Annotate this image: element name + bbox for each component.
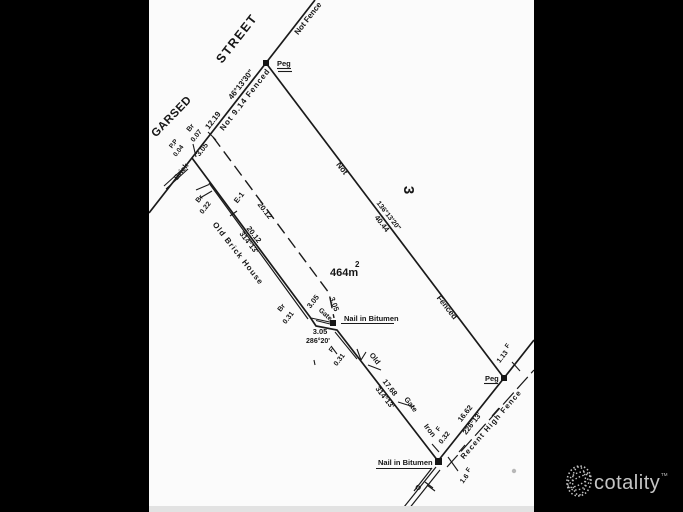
svg-text:F: F — [465, 466, 473, 473]
svg-text:Br: Br — [277, 303, 287, 314]
svg-text:Peg: Peg — [485, 374, 499, 383]
svg-text:cotality: cotality — [594, 472, 660, 494]
svg-text:Not Fence: Not Fence — [293, 0, 324, 36]
svg-text:1.13: 1.13 — [496, 349, 510, 364]
svg-text:2: 2 — [355, 260, 360, 269]
svg-text:3: 3 — [400, 186, 417, 194]
svg-text:STREET: STREET — [213, 11, 260, 66]
svg-text:Nail in Bitumen: Nail in Bitumen — [344, 314, 399, 323]
svg-text:F: F — [504, 342, 512, 349]
svg-text:3.05: 3.05 — [305, 293, 321, 310]
svg-text:286°20': 286°20' — [306, 337, 330, 345]
svg-text:1.6: 1.6 — [459, 473, 471, 485]
svg-text:3.05: 3.05 — [328, 296, 341, 313]
svg-text:0.31: 0.31 — [282, 310, 296, 325]
svg-text:TM: TM — [661, 472, 668, 477]
svg-text:Old: Old — [368, 351, 383, 367]
svg-text:Peg: Peg — [277, 59, 291, 68]
svg-text:3.05: 3.05 — [194, 141, 210, 158]
svg-text:Br: Br — [195, 194, 205, 205]
svg-text:Fenced: Fenced — [435, 294, 459, 322]
svg-text:Iron: Iron — [422, 422, 438, 439]
svg-text:0.31: 0.31 — [333, 352, 347, 367]
svg-text:Not: Not — [334, 160, 350, 176]
svg-text:3.05: 3.05 — [313, 327, 328, 336]
svg-text:E-1: E-1 — [232, 190, 246, 205]
svg-text:GARSED: GARSED — [149, 94, 194, 140]
svg-text:20.12: 20.12 — [256, 200, 275, 220]
svg-text:Nail in Bitumen: Nail in Bitumen — [378, 458, 433, 467]
